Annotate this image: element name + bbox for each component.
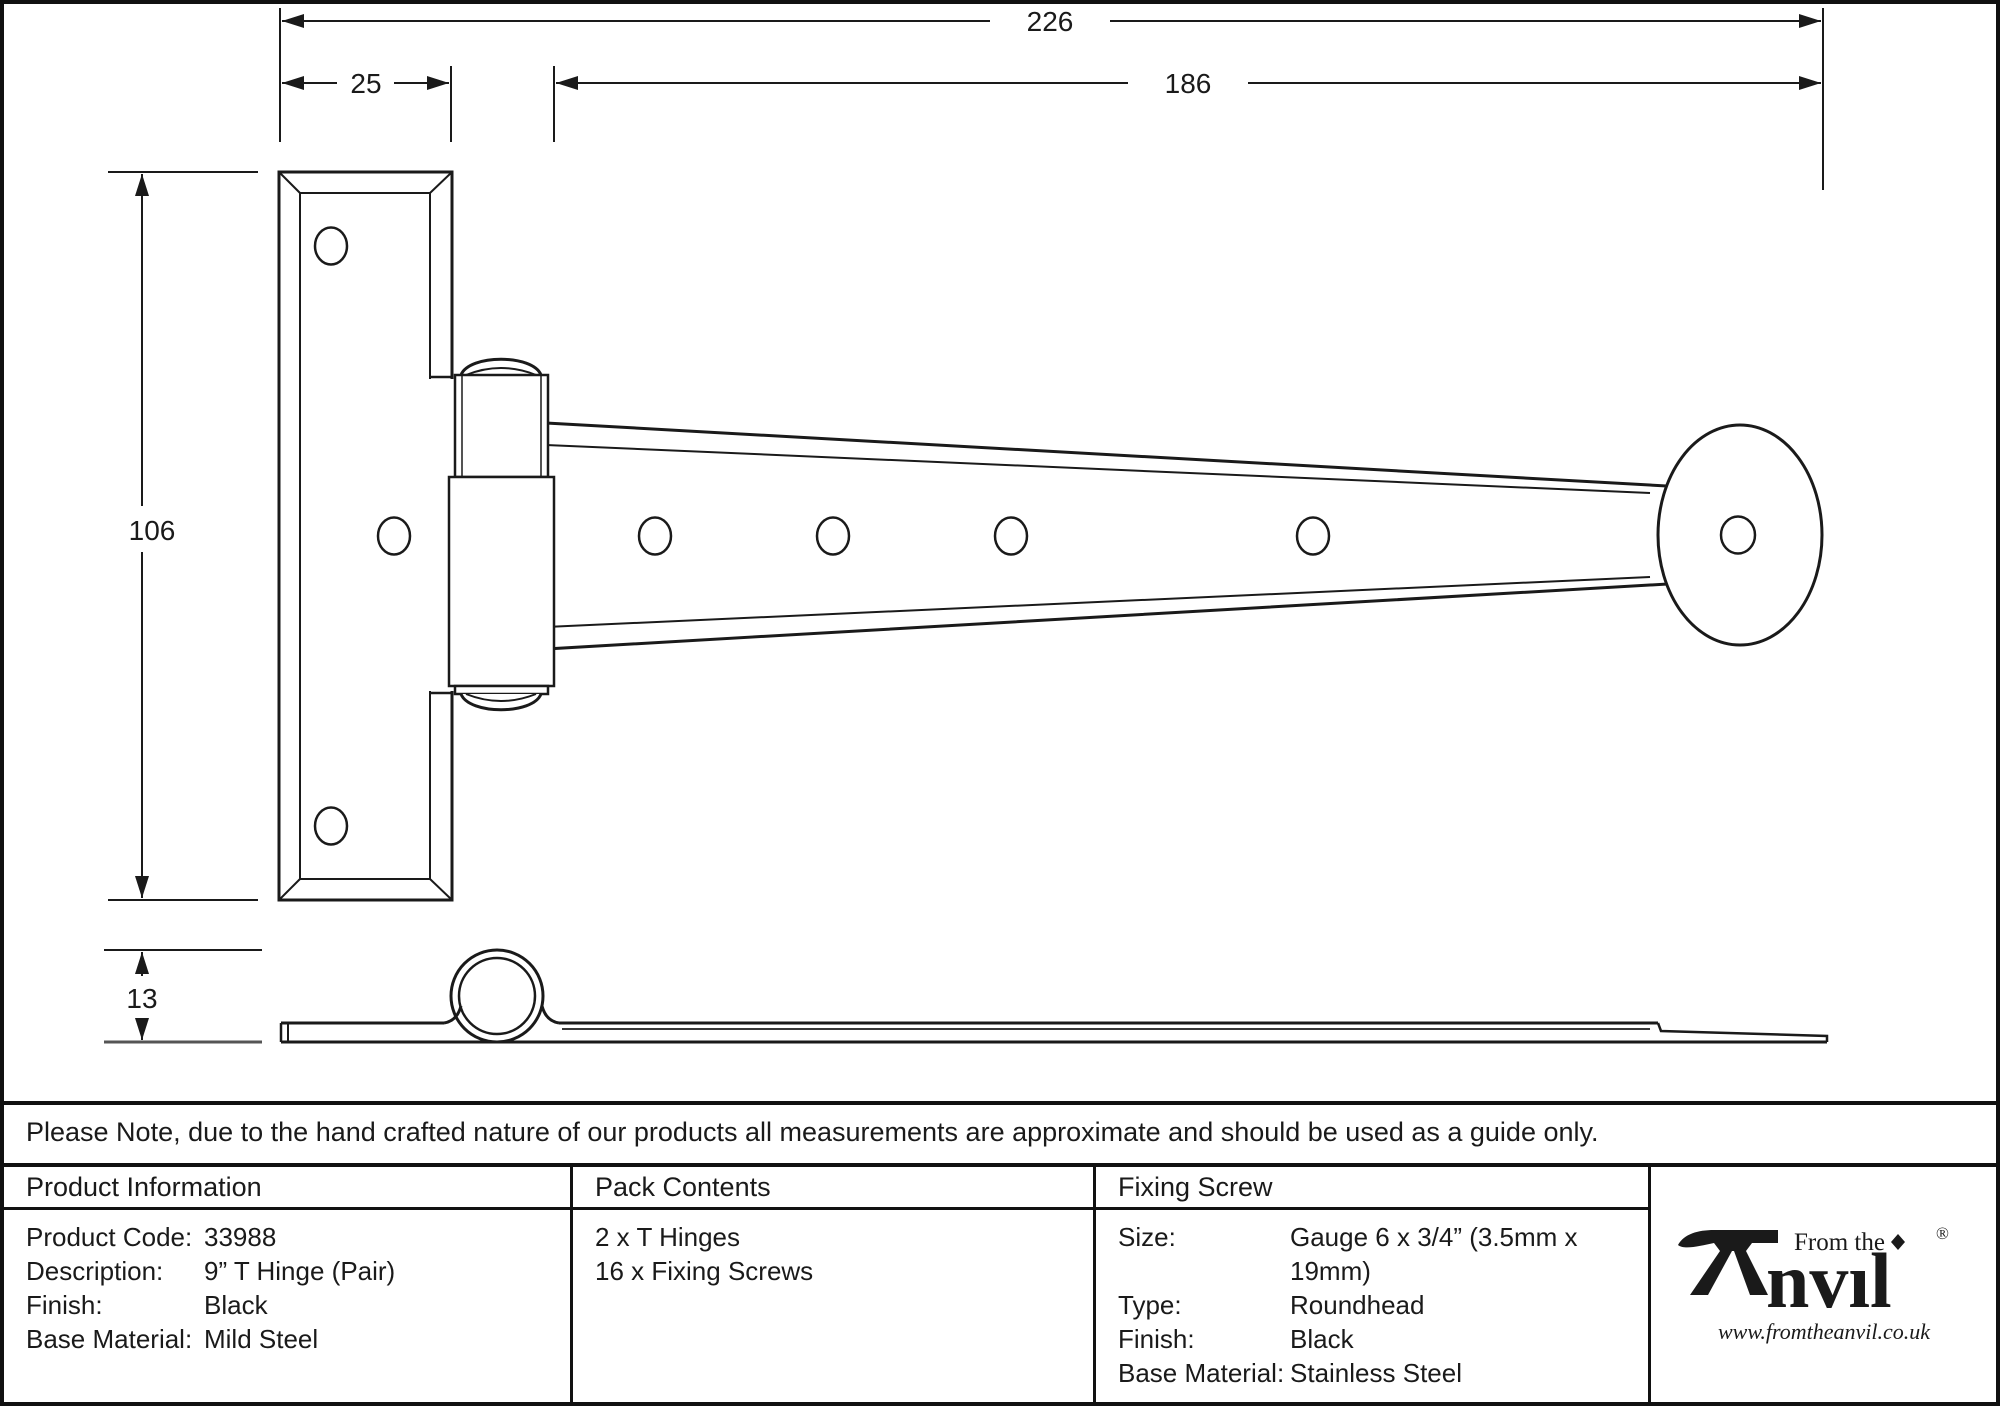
dimension-label-thickness: 13 — [126, 983, 157, 1014]
row-label: Finish: — [26, 1288, 204, 1322]
measurement-note-text: Please Note, due to the hand crafted nat… — [26, 1117, 1599, 1148]
table-row: Base Material: Stainless Steel — [1118, 1356, 1648, 1390]
pack-item: 2 x T Hinges — [595, 1220, 1093, 1254]
side-view-knuckle-outer — [451, 950, 543, 1042]
hinge-front-view — [279, 172, 1822, 900]
screw-hole — [1721, 517, 1755, 554]
row-label: Base Material: — [26, 1322, 204, 1356]
screw-hole — [995, 518, 1027, 555]
row-value: Gauge 6 x 3/4” (3.5mm x 19mm) — [1290, 1220, 1648, 1288]
dimension-label-plate-width: 25 — [350, 68, 381, 99]
pack-contents-column: Pack Contents 2 x T Hinges 16 x Fixing S… — [573, 1167, 1096, 1402]
screw-hole — [315, 228, 347, 265]
row-value: Roundhead — [1290, 1288, 1648, 1322]
column-header-label: Product Information — [26, 1172, 262, 1203]
dimension-label-plate-height: 106 — [129, 515, 176, 546]
fixing-screw-body: Size: Gauge 6 x 3/4” (3.5mm x 19mm) Type… — [1096, 1210, 1648, 1390]
from-the-anvil-logo: From the ® nvıl www.fromtheanvil.co.uk — [1674, 1219, 1974, 1351]
row-value: Mild Steel — [204, 1322, 570, 1356]
table-row: Finish: Black — [26, 1288, 570, 1322]
registered-mark: ® — [1936, 1224, 1949, 1243]
row-value: 9” T Hinge (Pair) — [204, 1254, 570, 1288]
product-information-column: Product Information Product Code: 33988 … — [4, 1167, 573, 1402]
logo-brand-text: nvıl — [1766, 1237, 1892, 1324]
table-row: Size: Gauge 6 x 3/4” (3.5mm x 19mm) — [1118, 1220, 1648, 1288]
spec-sheet: 226 186 25 106 — [0, 0, 2000, 1406]
row-label: Finish: — [1118, 1322, 1290, 1356]
row-value: Stainless Steel — [1290, 1356, 1648, 1390]
product-information-header: Product Information — [4, 1167, 570, 1210]
pack-contents-header: Pack Contents — [573, 1167, 1093, 1210]
table-row: Type: Roundhead — [1118, 1288, 1648, 1322]
hinge-technical-drawing: 226 186 25 106 — [4, 4, 1996, 1101]
table-row: Product Code: 33988 — [26, 1220, 570, 1254]
fixing-screw-header: Fixing Screw — [1096, 1167, 1648, 1210]
column-header-label: Pack Contents — [595, 1172, 771, 1203]
row-label: Type: — [1118, 1288, 1290, 1322]
fixing-screw-column: Fixing Screw Size: Gauge 6 x 3/4” (3.5mm… — [1096, 1167, 1651, 1402]
screw-hole — [1297, 518, 1329, 555]
row-label: Size: — [1118, 1220, 1290, 1288]
row-value: Black — [204, 1288, 570, 1322]
table-row: Base Material: Mild Steel — [26, 1322, 570, 1356]
row-label: Base Material: — [1118, 1356, 1290, 1390]
product-info-table: Product Information Product Code: 33988 … — [4, 1163, 1996, 1402]
screw-hole — [639, 518, 671, 555]
product-information-body: Product Code: 33988 Description: 9” T Hi… — [4, 1210, 570, 1356]
diamond-icon — [1891, 1234, 1905, 1250]
dimension-label-overall-length: 226 — [1027, 6, 1074, 37]
hinge-knuckle — [449, 359, 554, 710]
table-row: Finish: Black — [1118, 1322, 1648, 1356]
hinge-strap — [546, 423, 1685, 649]
screw-hole — [315, 808, 347, 845]
row-value: Black — [1290, 1322, 1648, 1356]
pack-item: 16 x Fixing Screws — [595, 1254, 1093, 1288]
table-row: Description: 9” T Hinge (Pair) — [26, 1254, 570, 1288]
screw-hole — [378, 518, 410, 555]
row-label: Product Code: — [26, 1220, 204, 1254]
screw-hole — [817, 518, 849, 555]
anvil-icon — [1678, 1230, 1778, 1295]
logo-url-text: www.fromtheanvil.co.uk — [1717, 1319, 1930, 1344]
measurement-note-row: Please Note, due to the hand crafted nat… — [4, 1101, 1996, 1159]
hinge-side-view — [281, 950, 1827, 1042]
column-header-label: Fixing Screw — [1118, 1172, 1273, 1203]
pack-contents-body: 2 x T Hinges 16 x Fixing Screws — [573, 1210, 1093, 1288]
dimension-label-strap-length: 186 — [1165, 68, 1212, 99]
row-value: 33988 — [204, 1220, 570, 1254]
hinge-plate — [279, 172, 452, 900]
row-label: Description: — [26, 1254, 204, 1288]
brand-logo-cell: From the ® nvıl www.fromtheanvil.co.uk — [1651, 1167, 1996, 1402]
